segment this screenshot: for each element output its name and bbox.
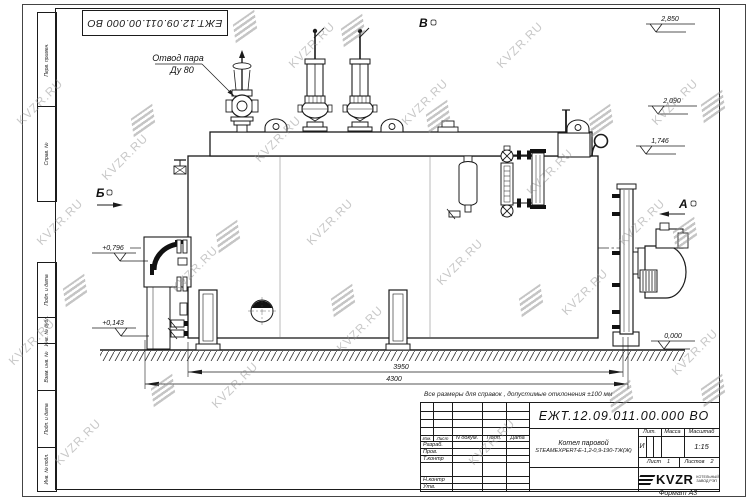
elevation-1746: 1,746 — [636, 138, 685, 154]
elevation-2850: 2,850 — [646, 16, 695, 32]
elevation-0796: +0,796 — [92, 245, 148, 261]
burner — [633, 223, 688, 298]
burner-grill — [640, 270, 657, 292]
view-label-right: А — [659, 197, 696, 217]
svg-text:0,000: 0,000 — [664, 333, 682, 340]
gauge-glass-tube — [532, 153, 544, 205]
vent-valve — [174, 160, 186, 174]
support-leg — [196, 290, 220, 350]
callout-line2: Ду 80 — [169, 65, 193, 75]
svg-text:4300: 4300 — [386, 376, 402, 383]
capped-nozzle — [438, 121, 458, 132]
steam-outlet-callout: Отвод пара Ду 80 — [152, 53, 234, 96]
safety-valve — [298, 28, 332, 131]
elevation-2090: 2,090 — [648, 98, 697, 114]
elevation-0143: +0,143 — [92, 320, 149, 336]
support-leg — [386, 290, 410, 350]
svg-text:+0,143: +0,143 — [102, 320, 124, 327]
gauge-siphon-loop — [592, 135, 608, 157]
svg-text:В: В — [419, 16, 428, 30]
safety-valve — [343, 28, 377, 131]
view-label-left: Б — [96, 186, 123, 208]
lifting-lug-icon — [567, 120, 589, 133]
svg-text:А: А — [678, 197, 688, 211]
lifting-lug-icon — [265, 119, 287, 132]
lifting-lug-icon — [381, 119, 403, 132]
boiler-drawing: Отвод пара Ду 80 В А Б 2,850 — [0, 0, 750, 500]
elevation-0000: 0,000 — [651, 333, 695, 349]
svg-text:Б: Б — [96, 186, 105, 200]
drawing-sheet: Перв. примен. Справ. № Подп. и дата Инв.… — [0, 0, 750, 500]
svg-text:2,090: 2,090 — [662, 98, 681, 105]
smokebox-duct — [147, 287, 170, 349]
svg-text:+0,796: +0,796 — [102, 245, 124, 252]
view-label-top: В — [419, 16, 436, 30]
svg-text:1,746: 1,746 — [651, 138, 669, 145]
rear-flange-ring — [612, 184, 636, 334]
svg-text:2,850: 2,850 — [660, 16, 679, 23]
drain-valves — [168, 318, 188, 339]
svg-text:3950: 3950 — [393, 364, 409, 371]
callout-line1: Отвод пара — [152, 53, 203, 63]
